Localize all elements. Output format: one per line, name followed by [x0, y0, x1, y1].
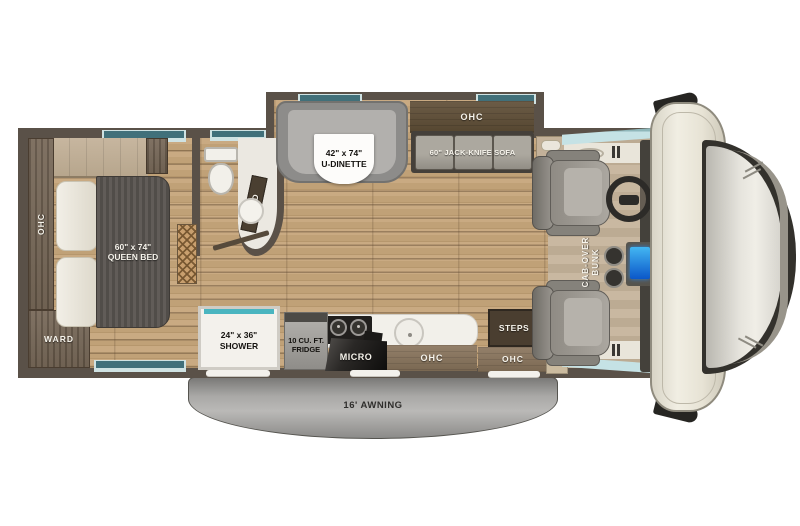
accordion-screen — [177, 224, 197, 284]
console-screen — [630, 247, 650, 279]
shower-teal-trim — [204, 309, 274, 314]
bed-name-label: QUEEN BED — [108, 252, 159, 262]
wardrobe-label: WARD — [44, 334, 74, 344]
shower-size-label: 24" x 36" — [221, 330, 257, 341]
rv-floorplan: 16' AWNING OHC WARD 60" x 74" QUEEN BED … — [0, 0, 800, 526]
fridge: 10 CU. FT. FRIDGE — [284, 312, 328, 370]
shower: 24" x 36" SHOWER — [198, 306, 280, 370]
bunk-label-line1: CAB-OVER — [581, 237, 591, 288]
sofa-ohc-label: OHC — [461, 112, 484, 123]
bed-pillow-top — [56, 181, 98, 251]
microwave: MICRO — [325, 338, 387, 371]
driver-seat — [532, 150, 614, 234]
entry-steps-label: STEPS — [499, 323, 529, 333]
bunk-label-line2: BUNK — [591, 248, 601, 275]
kitchen-ohc-label: OHC — [421, 353, 444, 364]
kitchen-ohc-cabinet: OHC — [387, 345, 477, 371]
bed-headboard — [52, 138, 148, 178]
fridge-label-line2: FRIDGE — [292, 345, 320, 354]
kitchen-sink — [394, 318, 424, 348]
bathroom-sink — [238, 198, 264, 224]
microwave-label: MICRO — [340, 352, 373, 363]
front-bumper-ring — [724, 150, 788, 364]
awning-label: 16' AWNING — [189, 400, 557, 412]
bed-size-label: 60" x 74" — [115, 242, 151, 252]
entry-ohc-label: OHC — [502, 354, 524, 364]
sofa-ohc-cabinet: OHC — [410, 101, 534, 133]
sink-drain — [408, 333, 412, 337]
fridge-label-line1: 10 CU. FT. — [288, 336, 324, 345]
u-dinette-table: 42" x 74" U-DINETTE — [314, 134, 374, 184]
exterior-trim — [350, 370, 400, 377]
toilet-bowl — [208, 163, 234, 195]
bedroom-ohc-label: OHC — [36, 213, 46, 235]
jack-knife-sofa: 60" JACK-KNIFE SOFA — [411, 131, 534, 173]
fridge-top-panel — [285, 313, 327, 322]
bedroom-window-bottom — [94, 360, 186, 372]
seat-cushion-inner — [564, 168, 602, 216]
dinette-size-label: 42" x 74" — [326, 148, 362, 159]
cab-over-bunk-label: CAB-OVER BUNK — [555, 223, 627, 301]
steering-wheel — [606, 176, 652, 222]
stove-burner — [330, 319, 347, 336]
bedroom-nightstand — [146, 138, 168, 174]
shower-name-label: SHOWER — [220, 341, 258, 352]
bedroom-ohc-cabinet: OHC — [28, 138, 54, 310]
steering-hub — [619, 195, 639, 205]
exterior-trim — [206, 370, 270, 377]
awning: 16' AWNING — [188, 377, 558, 439]
queen-bed: 60" x 74" QUEEN BED — [96, 176, 170, 328]
toilet-tank — [204, 147, 238, 162]
bed-pillow-bottom — [56, 257, 98, 327]
sofa-label: 60" JACK-KNIFE SOFA — [430, 148, 516, 157]
exterior-trim — [488, 371, 540, 378]
seat-cushion-inner — [564, 298, 602, 346]
dinette-name-label: U-DINETTE — [321, 159, 366, 170]
